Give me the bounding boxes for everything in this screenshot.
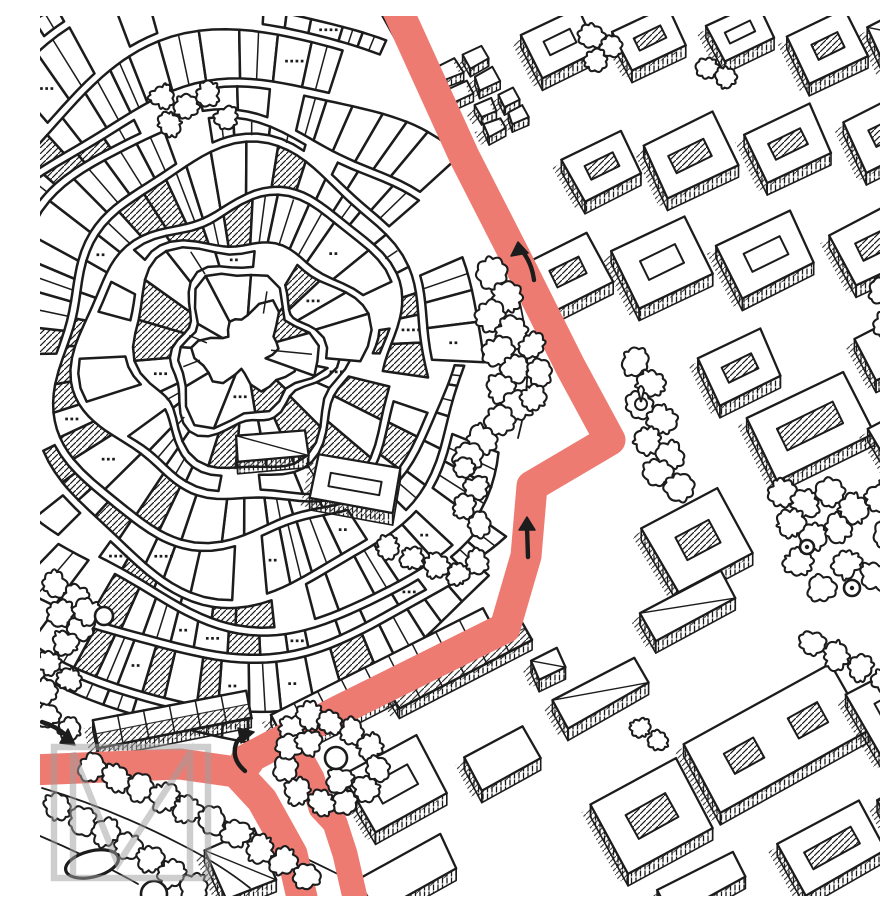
tree xyxy=(293,864,321,889)
old-town-parcel xyxy=(212,607,236,625)
tree xyxy=(520,384,547,411)
building-block xyxy=(635,112,739,211)
building-block xyxy=(334,735,447,844)
tree xyxy=(527,358,552,386)
tree xyxy=(823,640,850,671)
pond xyxy=(325,747,347,769)
old-town-parcel xyxy=(194,621,229,653)
tree xyxy=(799,631,826,656)
old-town-parcel xyxy=(40,495,80,534)
tree xyxy=(453,457,475,478)
building-block xyxy=(455,726,541,802)
pond xyxy=(95,607,113,625)
old-town-parcel xyxy=(248,275,283,315)
tree xyxy=(629,718,650,738)
old-town-parcel xyxy=(427,322,484,363)
old-town-parcel xyxy=(251,380,286,412)
old-town-parcel xyxy=(237,86,270,117)
old-town-parcel xyxy=(134,358,178,392)
old-town-parcel xyxy=(99,282,136,320)
old-town-parcel xyxy=(67,319,86,347)
building-block xyxy=(602,217,713,321)
building-block xyxy=(552,131,641,214)
building-block xyxy=(522,648,566,692)
old-town-parcel xyxy=(199,29,240,81)
tree xyxy=(648,730,668,751)
old-town-parcel xyxy=(383,343,428,378)
tree xyxy=(715,66,737,89)
old-town-parcel xyxy=(115,16,158,47)
old-town-parcel xyxy=(285,16,311,33)
old-town-parcel xyxy=(259,634,288,655)
old-town-parcel xyxy=(358,33,387,55)
tree xyxy=(399,547,424,570)
old-town-parcel xyxy=(373,329,390,354)
old-town-parcel xyxy=(244,498,268,536)
old-town-parcel xyxy=(436,384,457,416)
old-town-parcel xyxy=(305,620,341,647)
tree xyxy=(807,574,837,601)
old-town-parcel xyxy=(285,630,308,652)
old-town-parcel xyxy=(236,600,275,627)
building-block xyxy=(707,211,814,311)
building-block xyxy=(227,430,309,473)
building-block xyxy=(675,664,869,825)
tree xyxy=(663,473,694,502)
building-block xyxy=(768,801,880,897)
building-block xyxy=(735,104,831,196)
old-town-parcel xyxy=(448,365,464,386)
old-town-parcel xyxy=(249,662,282,712)
old-town-parcel xyxy=(264,498,293,525)
building-block xyxy=(689,329,781,418)
old-town-parcel xyxy=(239,30,278,82)
old-town-parcel xyxy=(259,472,303,494)
tree xyxy=(831,550,863,580)
old-town-parcel xyxy=(391,315,421,344)
tree xyxy=(874,519,880,547)
old-town-parcel xyxy=(308,19,342,41)
old-town-parcel xyxy=(78,357,141,402)
old-town-parcel xyxy=(263,16,287,28)
old-town-parcel xyxy=(166,227,208,244)
building-block xyxy=(778,16,868,96)
building-block xyxy=(301,454,401,525)
map-canvas xyxy=(40,16,880,896)
tree xyxy=(860,563,880,591)
old-town-parcel xyxy=(233,118,270,136)
old-town-parcel xyxy=(215,251,254,268)
tree xyxy=(196,80,219,106)
building-block xyxy=(834,92,880,185)
old-town-parcel xyxy=(224,199,253,247)
old-town-parcel xyxy=(99,541,128,569)
pond xyxy=(141,881,167,896)
old-town-parcel xyxy=(228,632,261,655)
city-map-illustration xyxy=(40,16,880,896)
tree xyxy=(873,310,880,338)
